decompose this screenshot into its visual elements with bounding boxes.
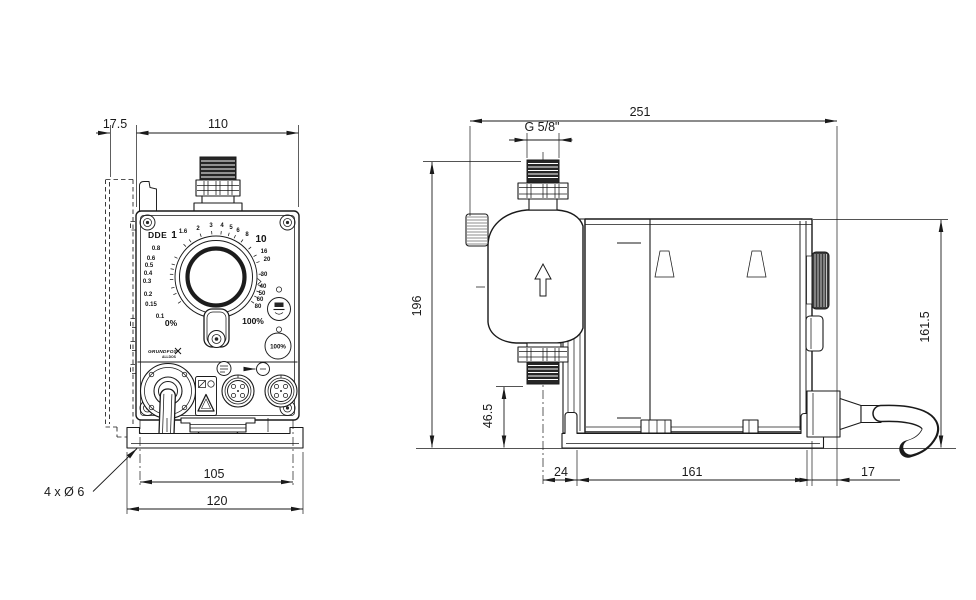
dim-text: 251 (630, 105, 651, 119)
dial-scale-label: 0.1 (156, 314, 165, 320)
dial-scale-label: 0.6 (147, 256, 156, 262)
dial-scale-label: 0.8 (152, 246, 161, 252)
dim-outlet-height: 46.5 (481, 387, 523, 448)
dosing-head (466, 210, 583, 343)
stroke-adjust-knob (807, 252, 830, 309)
dim-text: 24 (554, 465, 568, 479)
signal-connector (265, 375, 297, 407)
side-inlet-fitting (518, 160, 568, 210)
cable-gland (807, 391, 930, 449)
relief-valve (141, 364, 196, 442)
brand-sub-text: ALLDOS (162, 355, 177, 359)
dial-scale-label: 0.4 (144, 271, 153, 277)
dial-scale-label: 20 (264, 257, 271, 263)
bleed-valve-knob (466, 214, 488, 246)
prime-100-button: 100% (265, 333, 291, 359)
dial-scale-label: 10 (255, 234, 267, 245)
rear-latch (806, 316, 823, 351)
dial-scale-label: 1.6 (179, 229, 188, 235)
dial-pointer-knob (204, 309, 229, 348)
front-inlet-fitting (194, 157, 242, 211)
control-panel: DDE 11.62345681016203040506080100%0%0.10… (136, 211, 299, 441)
side-outlet-fitting (518, 343, 568, 384)
front-base (127, 418, 303, 448)
capacity-mode-button (268, 298, 291, 321)
dial-scale-label: 1 (171, 230, 177, 241)
dial-scale-label: 40 (260, 284, 267, 290)
warning-label (196, 377, 217, 416)
dim-text: 196 (410, 296, 424, 317)
dim-connection-thread: G 5/8" (509, 120, 573, 158)
dial-scale-label: 0.5 (145, 263, 154, 269)
model-label: DDE (148, 230, 167, 240)
signal-connector (222, 375, 254, 407)
dim-text: 17 (861, 465, 875, 479)
motor-housing (585, 219, 812, 433)
dim-base-length: 161 (577, 450, 807, 486)
dial-scale-label: 80 (255, 304, 262, 310)
dim-text: 161 (682, 465, 703, 479)
membrane-icon (217, 362, 231, 376)
dim-bracket-depth: 17.5 (96, 117, 127, 177)
dim-text: 120 (207, 494, 228, 508)
dial-scale-label: 0% (165, 318, 178, 328)
dial-scale-label: 60 (257, 297, 264, 303)
dim-text: 105 (204, 467, 225, 481)
dim-mounting-holes: 4 x Ø 6 (44, 449, 137, 500)
dim-text: 110 (208, 117, 228, 131)
dim-text: 17.5 (103, 117, 127, 131)
side-view (466, 152, 930, 486)
dial-scale-label: 16 (261, 249, 268, 255)
bracket-hook (140, 182, 157, 212)
dim-text: 161.5 (918, 311, 932, 342)
front-view: DDE 11.62345681016203040506080100%0%0.10… (106, 157, 304, 448)
dial-scale-label: 0.3 (143, 279, 152, 285)
dim-text: 4 x Ø 6 (44, 485, 84, 499)
dial-scale-label: 0.15 (145, 302, 157, 308)
dim-text: G 5/8" (524, 120, 559, 134)
dial-scale-label: 0.2 (144, 292, 153, 298)
dim-text: 46.5 (481, 404, 495, 428)
dim-base-width: 120 (127, 452, 303, 514)
dim-base-front-offset: 24 (543, 450, 577, 486)
dial-scale-label: 30 (261, 272, 268, 278)
drawing-canvas: DDE 11.62345681016203040506080100%0%0.10… (0, 0, 976, 600)
pump-dimensional-drawing: DDE 11.62345681016203040506080100%0%0.10… (0, 0, 976, 600)
dial-scale-label: 100% (242, 316, 264, 326)
prime-100-label: 100% (270, 344, 286, 351)
